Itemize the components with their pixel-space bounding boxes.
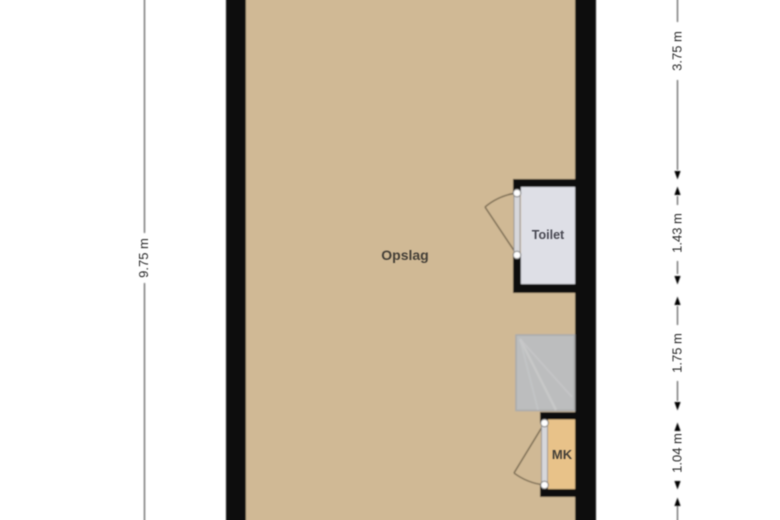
svg-text:1.04 m: 1.04 m bbox=[669, 433, 684, 473]
svg-text:3.75 m: 3.75 m bbox=[669, 31, 684, 71]
svg-text:1.75 m: 1.75 m bbox=[669, 333, 684, 373]
svg-text:Toilet: Toilet bbox=[532, 228, 565, 242]
svg-text:Opslag: Opslag bbox=[381, 247, 428, 263]
svg-text:9.75 m: 9.75 m bbox=[136, 238, 151, 278]
svg-text:MK: MK bbox=[552, 447, 573, 462]
svg-text:1.43 m: 1.43 m bbox=[669, 213, 684, 253]
